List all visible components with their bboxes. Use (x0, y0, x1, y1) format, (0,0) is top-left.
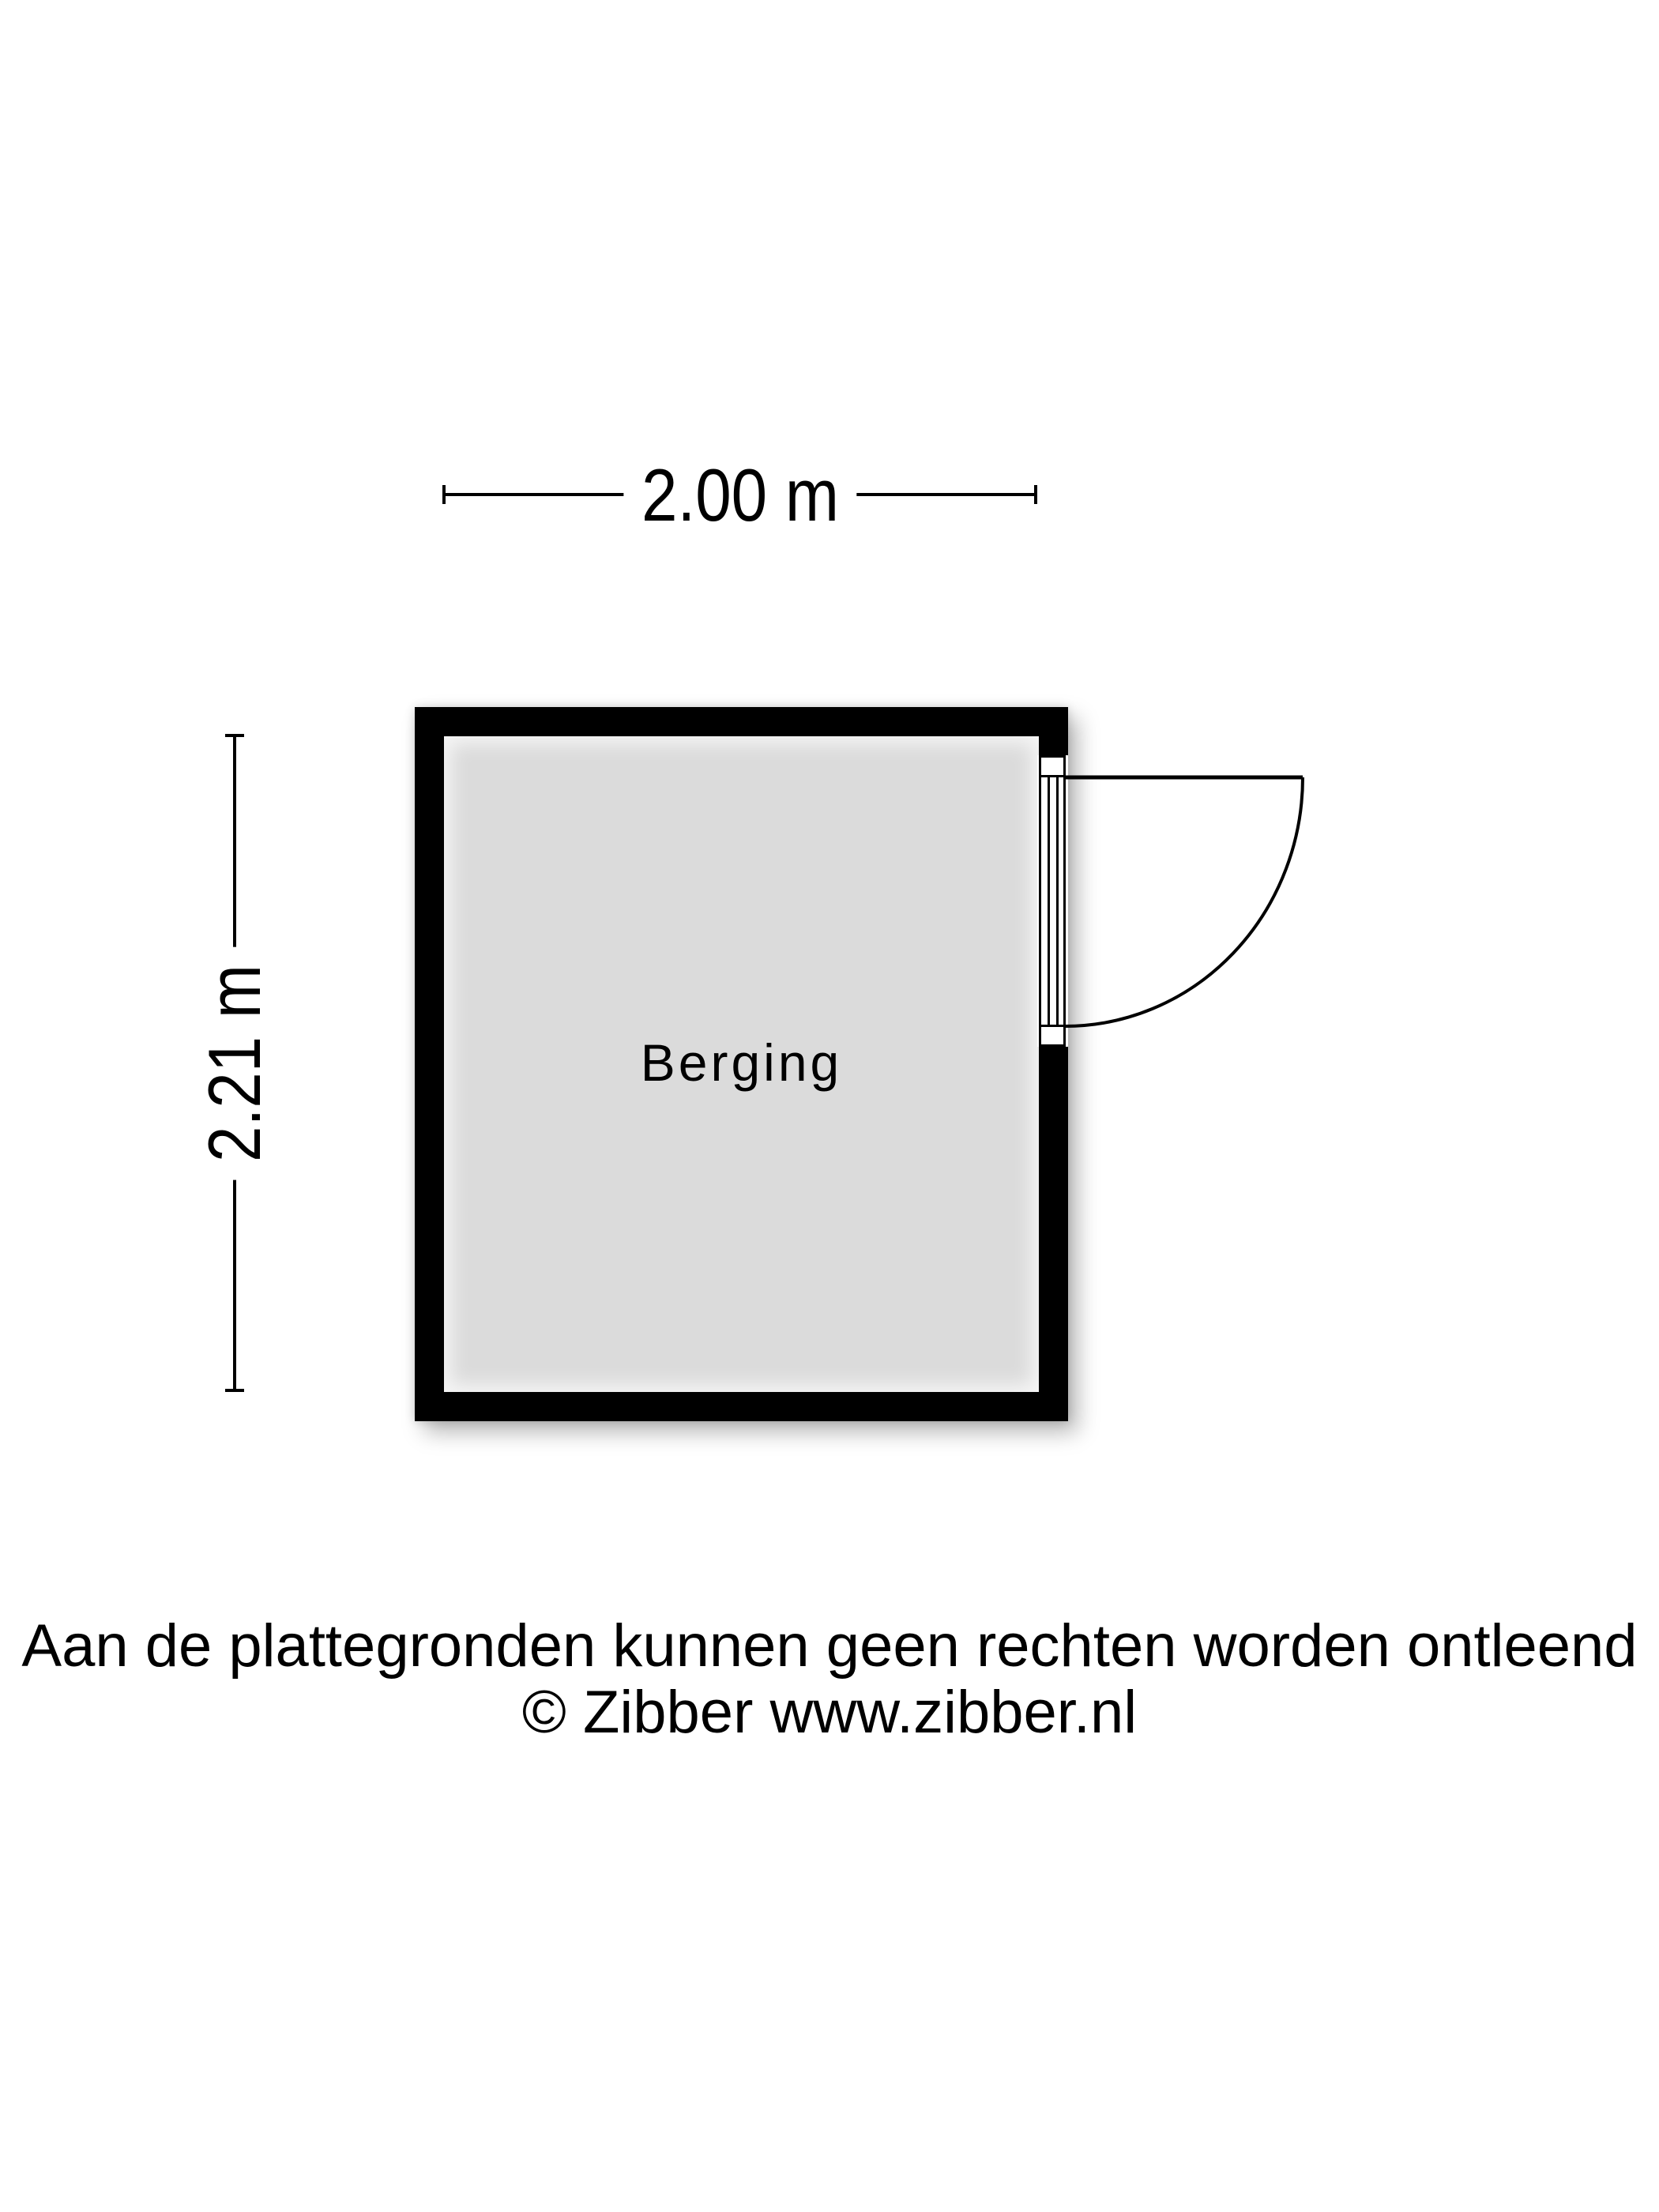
room-label: Berging (641, 1036, 843, 1092)
height-dimension-tick-top (225, 734, 244, 737)
door-jamb-bottom (1039, 1025, 1066, 1047)
width-dimension-tick-left (442, 485, 446, 504)
door-frame (1039, 777, 1066, 1025)
door-jamb-top (1039, 755, 1066, 777)
door-frame-line-inner-2 (1056, 777, 1059, 1025)
door-swing-arc (1065, 777, 1303, 1026)
floorplan-canvas: 2.00 m 2.21 m Berging Aan de plattegrond… (0, 0, 1659, 2212)
height-dimension-tick-bottom (225, 1389, 244, 1392)
height-dimension-label: 2.21 m (193, 946, 276, 1179)
room-walls: Berging (415, 707, 1068, 1421)
width-dimension-tick-right (1034, 485, 1037, 504)
footer-copyright: © Zibber www.zibber.nl (0, 1680, 1659, 1746)
width-dimension-label: 2.00 m (623, 453, 856, 537)
footer-disclaimer: Aan de plattegronden kunnen geen rechten… (0, 1613, 1659, 1680)
door-frame-line-inner-1 (1048, 777, 1050, 1025)
footer: Aan de plattegronden kunnen geen rechten… (0, 1613, 1659, 1746)
room-floor: Berging (444, 736, 1039, 1392)
